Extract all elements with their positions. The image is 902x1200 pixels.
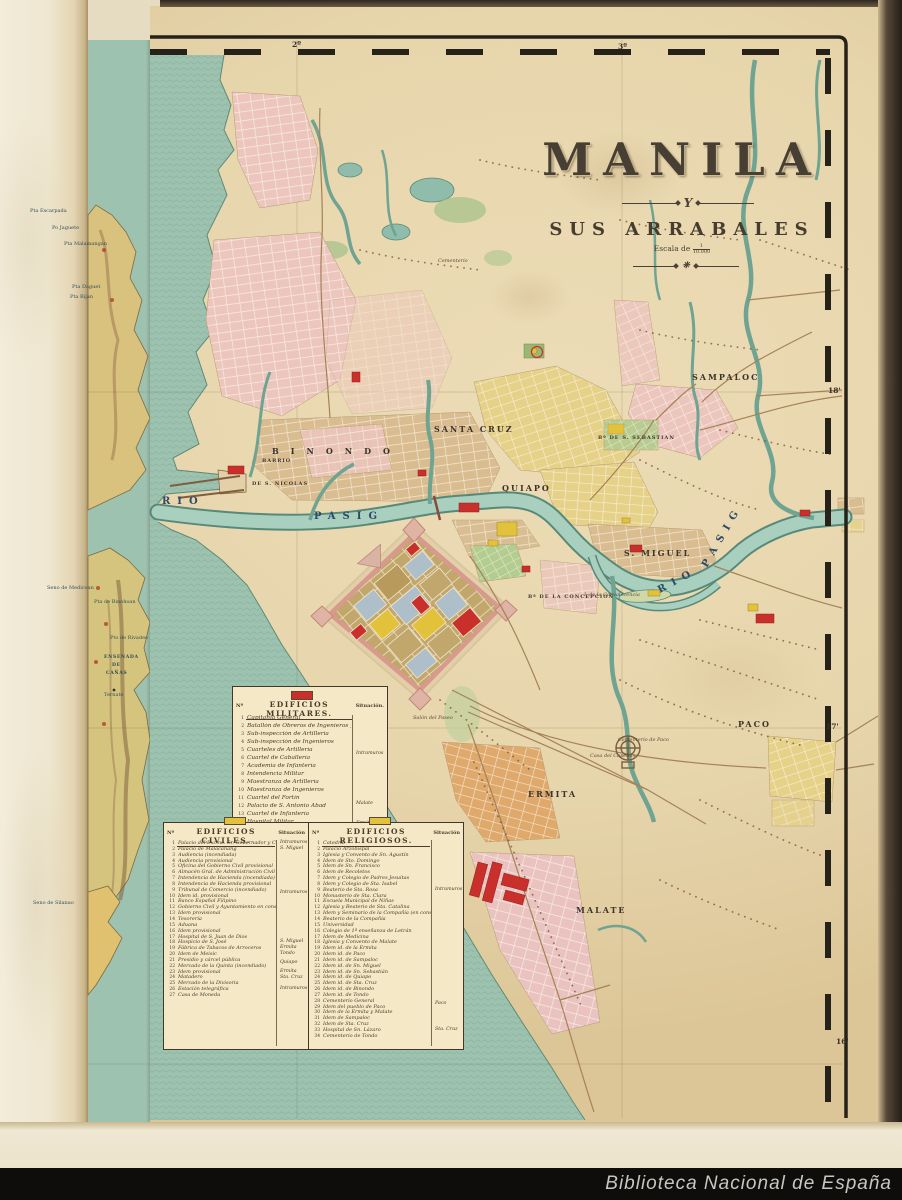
legend-row: 2Batallón de Obreros de Ingenieros y Car… xyxy=(236,723,351,731)
scan-top-edge xyxy=(160,0,890,7)
legend-militares-rows: 1Capitanía General2Batallón de Obreros d… xyxy=(236,715,351,839)
legend-situacion: Intramuros xyxy=(280,890,307,895)
legend-row: 34Cementerio de Tondo xyxy=(312,1033,431,1039)
left-panel-terrain xyxy=(88,205,150,995)
legend-situacion: Malate xyxy=(356,801,373,806)
legend-row: 4Sub-inspección de Ingenieros xyxy=(236,739,351,747)
legend-swatch-religious-yellow xyxy=(369,817,391,825)
map-title: MANILA xyxy=(532,133,832,186)
legend-col-num: Nº xyxy=(236,703,246,709)
legend-row: 27Casa de Moneda xyxy=(167,992,276,998)
legend-row: 8Intendencia Militar xyxy=(236,771,351,779)
legend-row: 7Academia de Infantería xyxy=(236,763,351,771)
legend-row: 6Cuartel de Caballería xyxy=(236,755,351,763)
legend-row: 5Cuarteles de Artillería xyxy=(236,747,351,755)
scale-label: Escala de xyxy=(654,244,691,253)
legend-situacion: Quiapo xyxy=(280,960,297,965)
legend-situacion: Intramuros xyxy=(356,751,383,756)
legend-edificios-religiosos: Nº EDIFICIOS RELIGIOSOS. Situación 1Cate… xyxy=(309,823,463,1049)
legend-row: 13Cuartel de Infantería xyxy=(236,811,351,819)
legend-row: 12Palacio de S. Antonio Abad xyxy=(236,803,351,811)
legend-group-civil-religious: Nº EDIFICIOS CIVILES. Situación 1Palacio… xyxy=(163,822,464,1050)
scanned-historical-map: BIBLIOTECA NACIONAL MADRID MANILA Y SUS … xyxy=(0,0,902,1200)
legend-civiles-situaciones: IntramurosS. MiguelIntramurosS. MiguelEr… xyxy=(276,840,306,1046)
legend-religiosos-rows: 1Catedral2Palacio Arzobispal3Iglesia y C… xyxy=(312,840,431,1046)
scan-bottom-paper xyxy=(0,1122,902,1168)
legend-col-situacion: Situación xyxy=(433,830,460,836)
legend-row: 3Sub-inspección de Artillería xyxy=(236,731,351,739)
legend-row: 1Capitanía General xyxy=(236,715,351,723)
legend-situacion: Sta. Cruz xyxy=(280,975,303,980)
legend-situacion: Intramuros xyxy=(280,986,307,991)
legend-col-situacion: Situación xyxy=(278,830,305,836)
legend-situacion: Ermita xyxy=(280,945,297,950)
legend-situacion: Sta. Cruz xyxy=(435,1027,458,1032)
legend-col-situacion: Situación. xyxy=(356,703,384,709)
legend-situacion: S. Miguel xyxy=(280,939,303,944)
legend-swatch-military-red xyxy=(291,691,313,700)
watermark-text: Biblioteca Nacional de España xyxy=(605,1173,892,1195)
legend-row: 10Maestranza de Ingenieros xyxy=(236,787,351,795)
watermark-bar: Biblioteca Nacional de España xyxy=(0,1168,902,1200)
legend-situacion: Intramuros xyxy=(280,840,307,845)
subtitle-ornament: ❈ xyxy=(633,260,739,272)
legend-row: 11Cuartel del Fortín xyxy=(236,795,351,803)
legend-situacion: S. Miguel xyxy=(280,846,303,851)
legend-religiosos-situaciones: IntramurosPacoSta. Cruz xyxy=(431,840,461,1046)
legend-edificios-militares: Nº EDIFICIOS MILITARES. Situación. 1Capi… xyxy=(232,686,388,844)
legend-situacion: Intramuros xyxy=(435,887,462,892)
legend-civiles-rows: 1Palacio del Excmo. Sr. Gobernador y Cap… xyxy=(167,840,276,1046)
scale-fraction: 1 10.000 xyxy=(693,244,711,254)
legend-edificios-civiles: Nº EDIFICIOS CIVILES. Situación 1Palacio… xyxy=(164,823,309,1049)
legend-situacion: Paco xyxy=(435,1001,446,1006)
map-subtitle: SUS ARRABALES xyxy=(532,219,832,240)
legend-row: 9Maestranza de Artillería xyxy=(236,779,351,787)
legend-situacion: Tondo xyxy=(280,951,295,956)
scan-right-edge xyxy=(878,0,902,1200)
map-scale: Escala de 1 10.000 xyxy=(532,244,832,254)
legend-swatch-civil-yellow xyxy=(224,817,246,825)
legend-situacion: Ermita xyxy=(280,969,297,974)
legend-col-num: Nº xyxy=(167,830,177,836)
legend-col-num: Nº xyxy=(312,830,322,836)
title-ornament: Y xyxy=(622,196,754,210)
